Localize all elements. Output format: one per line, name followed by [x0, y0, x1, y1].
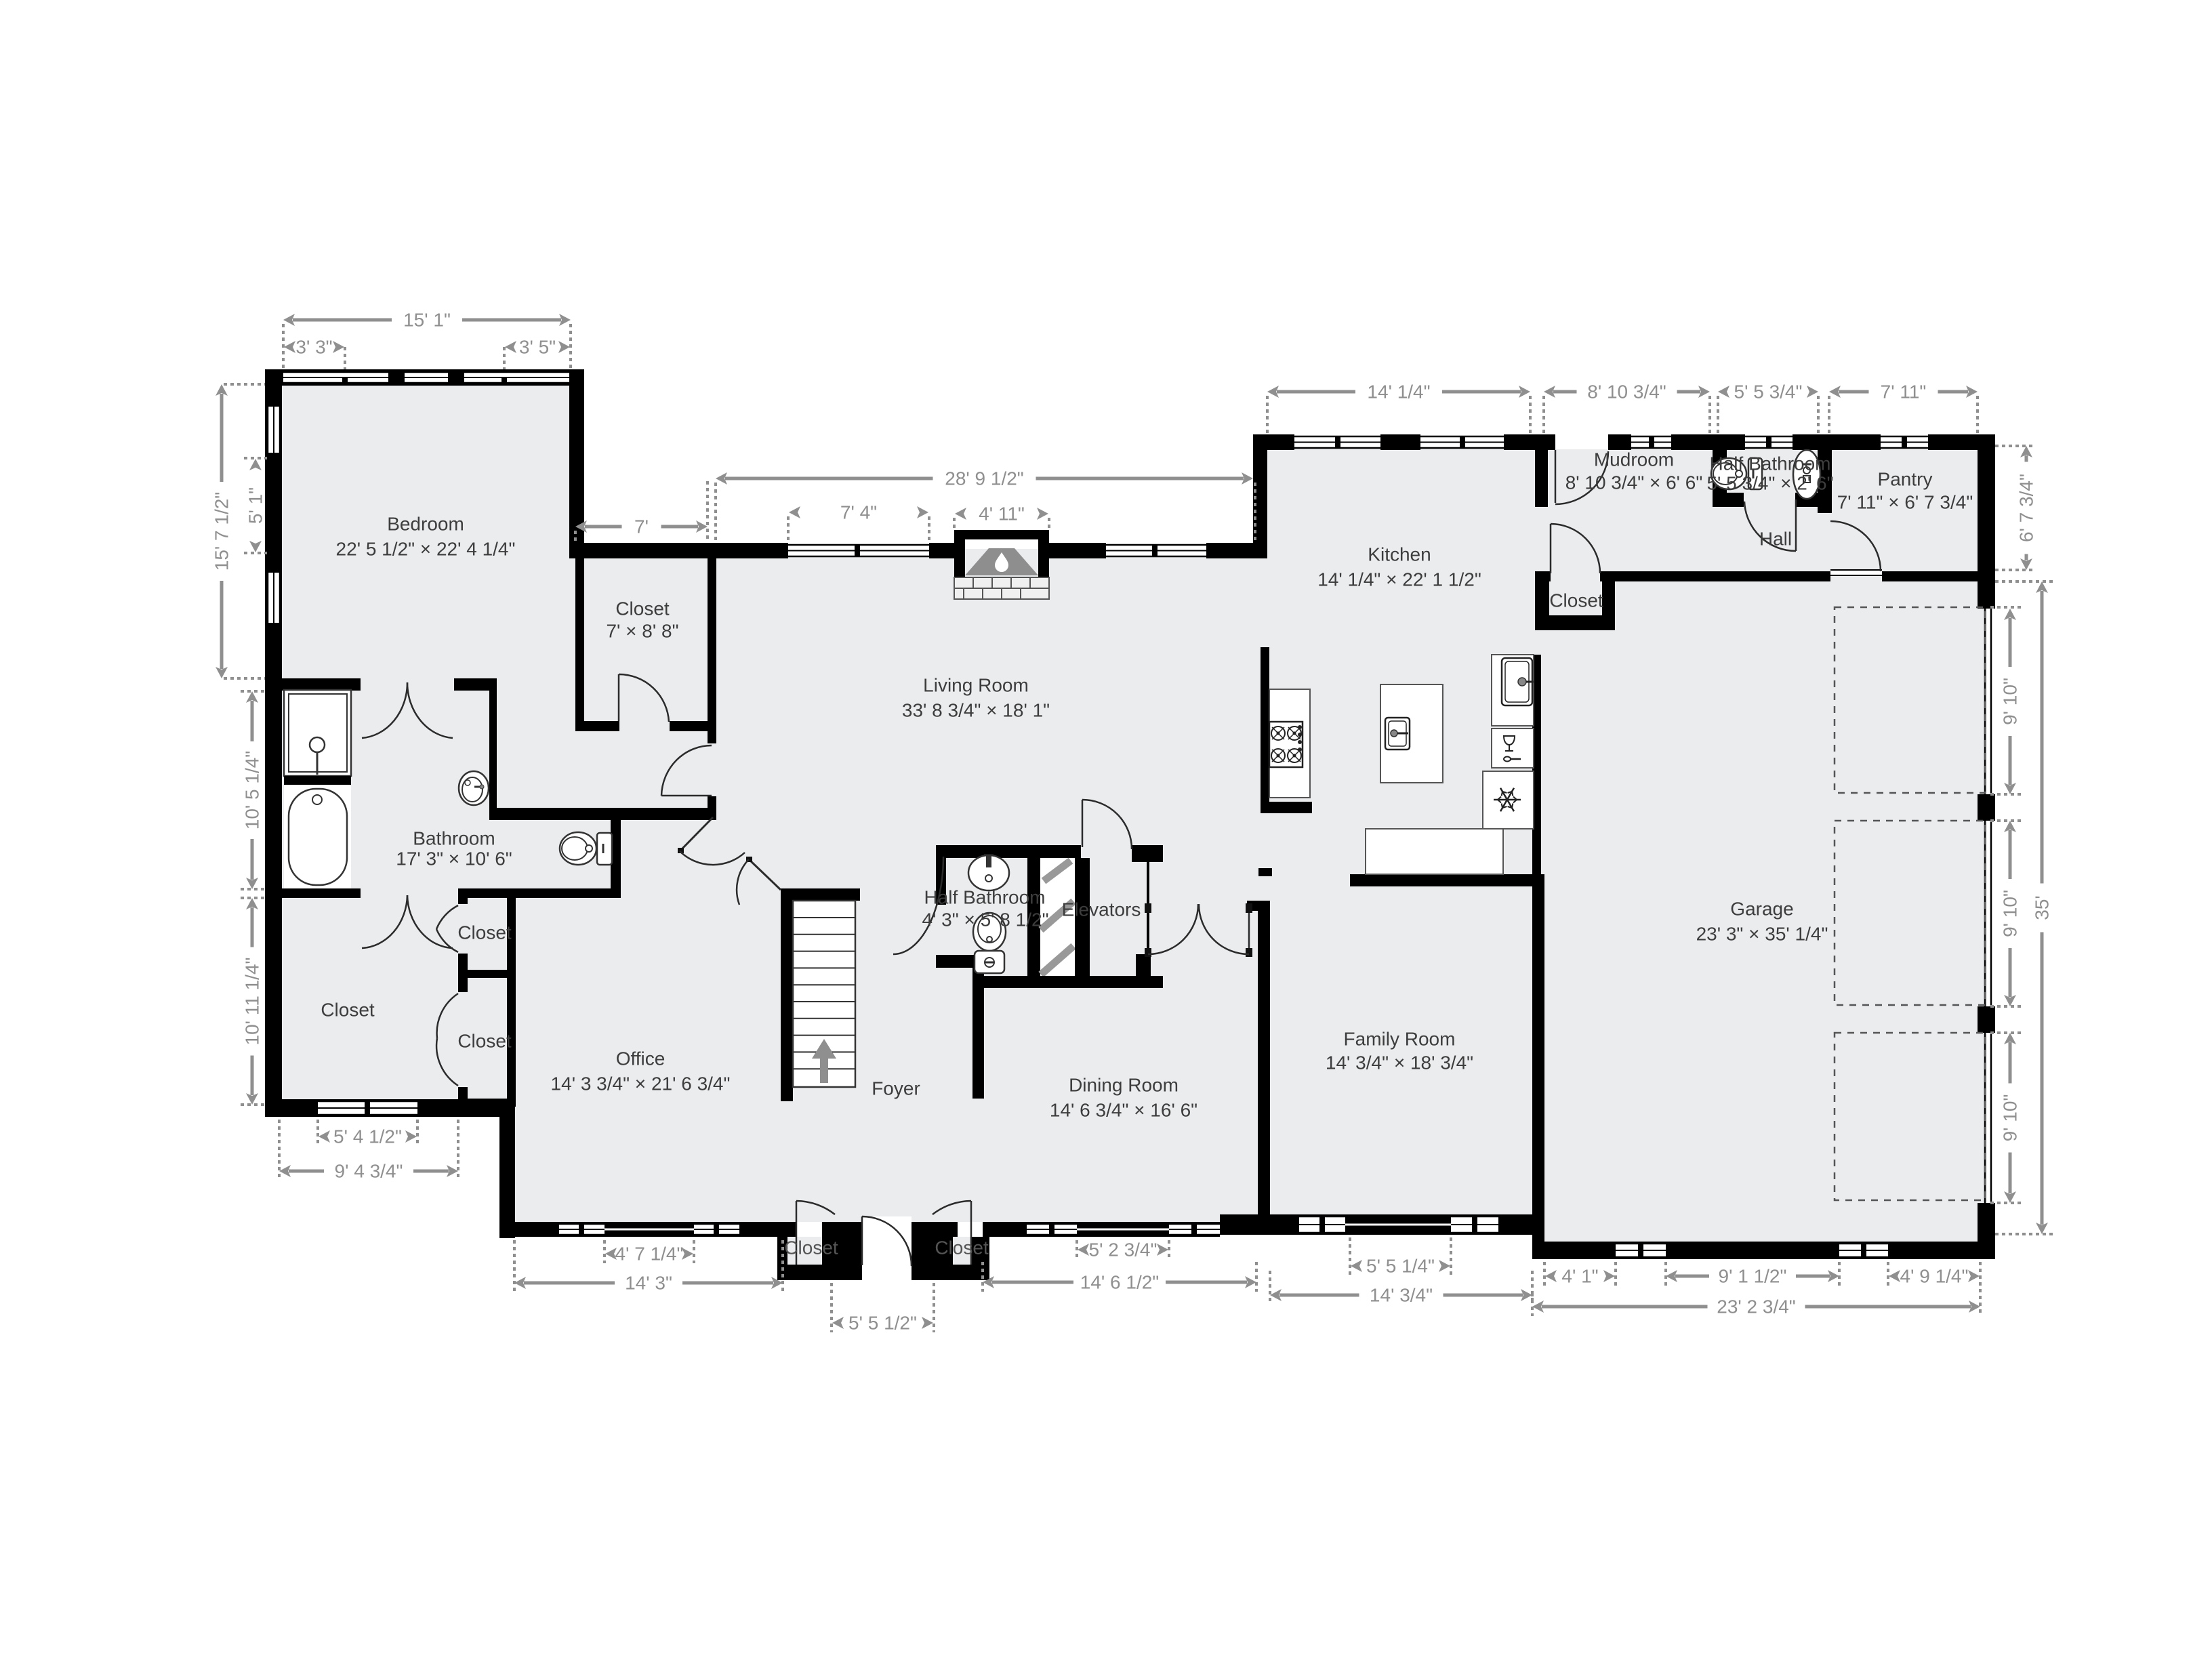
- svg-text:Closet: Closet: [321, 1000, 375, 1021]
- svg-text:5' 4 1/2": 5' 4 1/2": [333, 1126, 402, 1147]
- svg-text:Half Bathroom: Half Bathroom: [924, 887, 1046, 908]
- svg-text:Closet: Closet: [784, 1237, 838, 1258]
- svg-text:Closet: Closet: [457, 1031, 512, 1052]
- svg-text:Family Room: Family Room: [1344, 1029, 1456, 1050]
- svg-text:14' 1/4": 14' 1/4": [1367, 382, 1430, 403]
- svg-text:5' 5 1/2": 5' 5 1/2": [848, 1313, 917, 1334]
- svg-text:23' 3" × 35' 1/4": 23' 3" × 35' 1/4": [1696, 924, 1828, 945]
- svg-text:5' 5 1/4": 5' 5 1/4": [1366, 1256, 1435, 1277]
- svg-text:35': 35': [2032, 895, 2053, 920]
- svg-text:10' 5 1/4": 10' 5 1/4": [242, 751, 263, 829]
- svg-text:Closet: Closet: [935, 1237, 989, 1258]
- svg-text:28' 9 1/2": 28' 9 1/2": [945, 468, 1023, 489]
- svg-text:3' 5": 3' 5": [519, 337, 556, 358]
- svg-text:14' 1/4" × 22' 1 1/2": 14' 1/4" × 22' 1 1/2": [1317, 569, 1481, 590]
- svg-text:5' 2 3/4": 5' 2 3/4": [1089, 1240, 1158, 1261]
- svg-text:5' 1": 5' 1": [245, 487, 266, 524]
- svg-text:14' 3": 14' 3": [625, 1273, 672, 1294]
- svg-text:33' 8 3/4" × 18' 1": 33' 8 3/4" × 18' 1": [902, 700, 1050, 721]
- svg-text:Garage: Garage: [1730, 899, 1793, 920]
- svg-text:8' 10 3/4" × 6' 6": 8' 10 3/4" × 6' 6": [1565, 472, 1703, 493]
- svg-text:5' 5 3/4": 5' 5 3/4": [1734, 382, 1803, 403]
- svg-text:14' 6 3/4" × 16' 6": 14' 6 3/4" × 16' 6": [1050, 1100, 1197, 1121]
- svg-text:3' 3": 3' 3": [295, 337, 332, 358]
- svg-text:8' 10 3/4": 8' 10 3/4": [1587, 382, 1666, 403]
- svg-text:7' 4": 7' 4": [840, 502, 877, 523]
- svg-text:Mudroom: Mudroom: [1594, 449, 1674, 470]
- svg-text:Bedroom: Bedroom: [387, 514, 464, 535]
- svg-text:4' 7 1/4": 4' 7 1/4": [615, 1244, 684, 1265]
- svg-text:Closet: Closet: [615, 598, 670, 619]
- svg-text:7': 7': [634, 516, 649, 537]
- svg-text:17' 3" × 10' 6": 17' 3" × 10' 6": [396, 848, 512, 869]
- svg-text:4' 11": 4' 11": [979, 504, 1025, 525]
- svg-text:4' 9 1/4": 4' 9 1/4": [1900, 1266, 1969, 1287]
- svg-text:Living Room: Living Room: [923, 675, 1029, 696]
- svg-text:Pantry: Pantry: [1878, 469, 1933, 490]
- svg-text:Bathroom: Bathroom: [413, 828, 495, 849]
- svg-text:15' 7 1/2": 15' 7 1/2": [211, 492, 232, 571]
- svg-text:5' 5 3/4" × 2' 6": 5' 5 3/4" × 2' 6": [1706, 473, 1833, 494]
- svg-text:14' 3/4": 14' 3/4": [1370, 1285, 1433, 1306]
- svg-text:7' × 8' 8": 7' × 8' 8": [606, 621, 678, 642]
- svg-text:14' 3 3/4" × 21' 6 3/4": 14' 3 3/4" × 21' 6 3/4": [551, 1073, 731, 1094]
- svg-text:9' 10": 9' 10": [2000, 1094, 2021, 1142]
- svg-text:7' 11" × 6' 7 3/4": 7' 11" × 6' 7 3/4": [1837, 492, 1973, 513]
- svg-text:Foyer: Foyer: [872, 1078, 920, 1099]
- svg-text:9' 1 1/2": 9' 1 1/2": [1719, 1266, 1787, 1287]
- svg-text:Half Bathroom: Half Bathroom: [1710, 453, 1831, 474]
- svg-text:Dining Room: Dining Room: [1069, 1075, 1179, 1096]
- svg-text:Hall: Hall: [1759, 529, 1792, 550]
- svg-text:Office: Office: [616, 1048, 665, 1069]
- svg-text:6' 7 3/4": 6' 7 3/4": [2016, 474, 2037, 542]
- svg-text:4' 1": 4' 1": [1561, 1266, 1598, 1287]
- svg-text:Closet: Closet: [457, 922, 512, 943]
- svg-text:23' 2 3/4": 23' 2 3/4": [1717, 1296, 1795, 1317]
- svg-text:22' 5 1/2" × 22' 4 1/4": 22' 5 1/2" × 22' 4 1/4": [336, 539, 516, 560]
- svg-text:7' 11": 7' 11": [1881, 382, 1927, 403]
- svg-text:Closet: Closet: [1549, 590, 1603, 611]
- svg-text:4' 3" × 5' 8 1/2": 4' 3" × 5' 8 1/2": [922, 909, 1048, 930]
- svg-text:15' 1": 15' 1": [403, 310, 451, 331]
- svg-text:10' 11 1/4": 10' 11 1/4": [242, 958, 263, 1046]
- svg-text:9' 10": 9' 10": [2000, 890, 2021, 937]
- svg-text:Elevators: Elevators: [1062, 899, 1141, 920]
- svg-text:14' 3/4" × 18' 3/4": 14' 3/4" × 18' 3/4": [1326, 1052, 1473, 1073]
- svg-text:Kitchen: Kitchen: [1368, 544, 1431, 565]
- svg-text:14' 6 1/2": 14' 6 1/2": [1080, 1272, 1159, 1293]
- svg-text:9' 10": 9' 10": [2000, 678, 2021, 725]
- svg-text:9' 4 3/4": 9' 4 3/4": [335, 1161, 403, 1182]
